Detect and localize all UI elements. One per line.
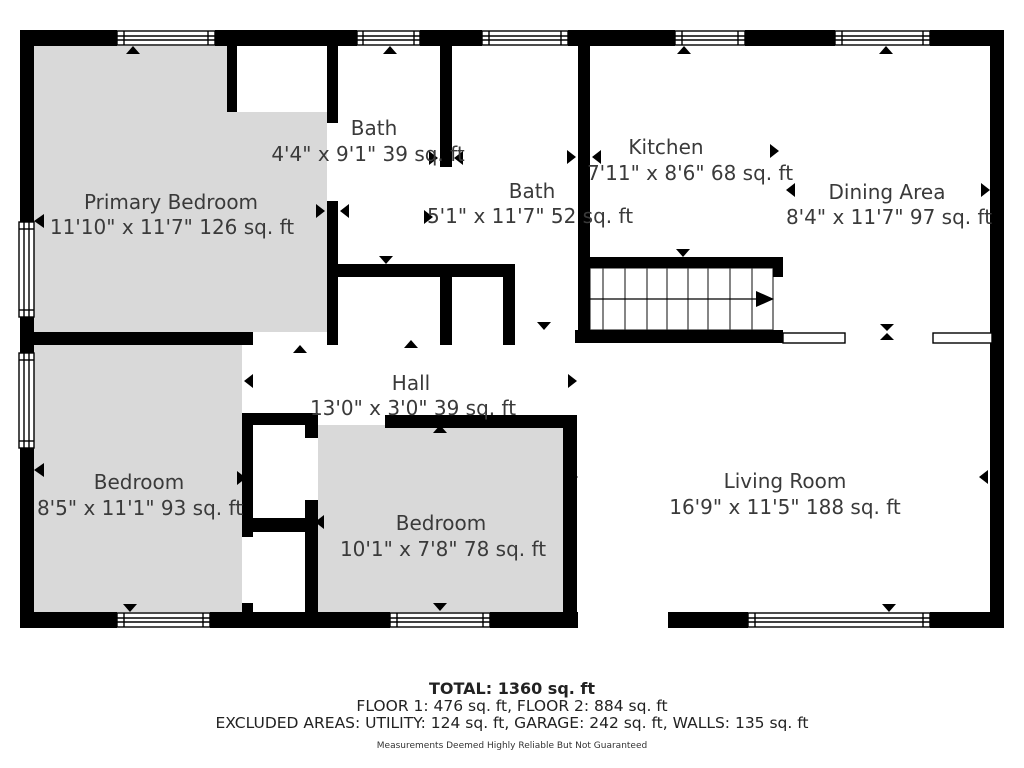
room-dims-kitchen: 7'11" x 8'6" 68 sq. ft <box>587 161 793 185</box>
room-dims-bath-upper: 4'4" x 9'1" 39 sq. ft <box>271 142 465 166</box>
room-dims-bedroom-left: 8'5" x 11'1" 93 sq. ft <box>37 496 243 520</box>
room-dims-living-room: 16'9" x 11'5" 188 sq. ft <box>669 495 901 519</box>
room-label-bath-upper: Bath <box>351 116 398 140</box>
window <box>748 613 930 627</box>
area-summary: TOTAL: 1360 sq. ft FLOOR 1: 476 sq. ft, … <box>0 680 1024 751</box>
room-label-bath-lower: Bath <box>509 179 556 203</box>
room-dims-bedroom-middle: 10'1" x 7'8" 78 sq. ft <box>340 537 546 561</box>
total-area-text: TOTAL: 1360 sq. ft <box>0 680 1024 698</box>
window <box>675 31 745 45</box>
window <box>117 31 215 45</box>
room-label-bedroom-left: Bedroom <box>94 470 184 494</box>
room-label-living-room: Living Room <box>724 469 847 493</box>
staircase <box>590 268 774 330</box>
excluded-areas-text: EXCLUDED AREAS: UTILITY: 124 sq. ft, GAR… <box>0 715 1024 732</box>
room-label-primary-bedroom: Primary Bedroom <box>84 190 258 214</box>
window <box>835 31 930 45</box>
room-label-hall: Hall <box>392 371 430 395</box>
window <box>117 613 210 627</box>
room-dims-primary-bedroom: 11'10" x 11'7" 126 sq. ft <box>50 215 294 239</box>
room-fill-primary-bedroom <box>34 46 327 332</box>
floor-plan-drawing: Primary Bedroom 11'10" x 11'7" 126 sq. f… <box>0 0 1024 660</box>
window <box>19 353 34 448</box>
window <box>390 613 490 627</box>
room-label-kitchen: Kitchen <box>628 135 703 159</box>
window <box>19 222 34 317</box>
room-dims-dining-area: 8'4" x 11'7" 97 sq. ft <box>786 205 992 229</box>
floor-areas-text: FLOOR 1: 476 sq. ft, FLOOR 2: 884 sq. ft <box>0 698 1024 715</box>
room-label-bedroom-middle: Bedroom <box>396 511 486 535</box>
floor-plan-page: Primary Bedroom 11'10" x 11'7" 126 sq. f… <box>0 0 1024 768</box>
disclaimer-text: Measurements Deemed Highly Reliable But … <box>0 741 1024 751</box>
room-dims-hall: 13'0" x 3'0" 39 sq. ft <box>310 396 516 420</box>
room-label-dining-area: Dining Area <box>829 180 946 204</box>
room-dims-bath-lower: 5'1" x 11'7" 52 sq. ft <box>427 204 633 228</box>
railing <box>783 333 845 343</box>
window <box>357 31 420 45</box>
railing <box>933 333 992 343</box>
window <box>482 31 568 45</box>
